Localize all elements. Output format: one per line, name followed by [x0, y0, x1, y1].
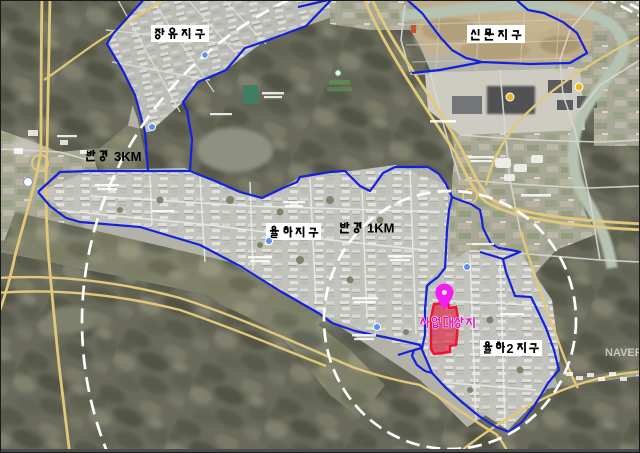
- svg-text:1KM: 1KM: [367, 221, 394, 236]
- svg-text:3KM: 3KM: [114, 149, 141, 164]
- svg-text:NAVER: NAVER: [605, 347, 640, 359]
- svg-text:2: 2: [507, 342, 514, 356]
